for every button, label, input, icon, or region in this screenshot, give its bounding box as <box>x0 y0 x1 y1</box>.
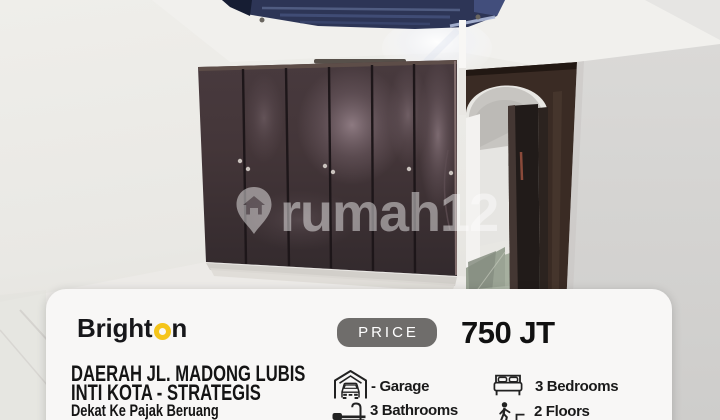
svg-text:rumah12: rumah12 <box>280 183 498 243</box>
